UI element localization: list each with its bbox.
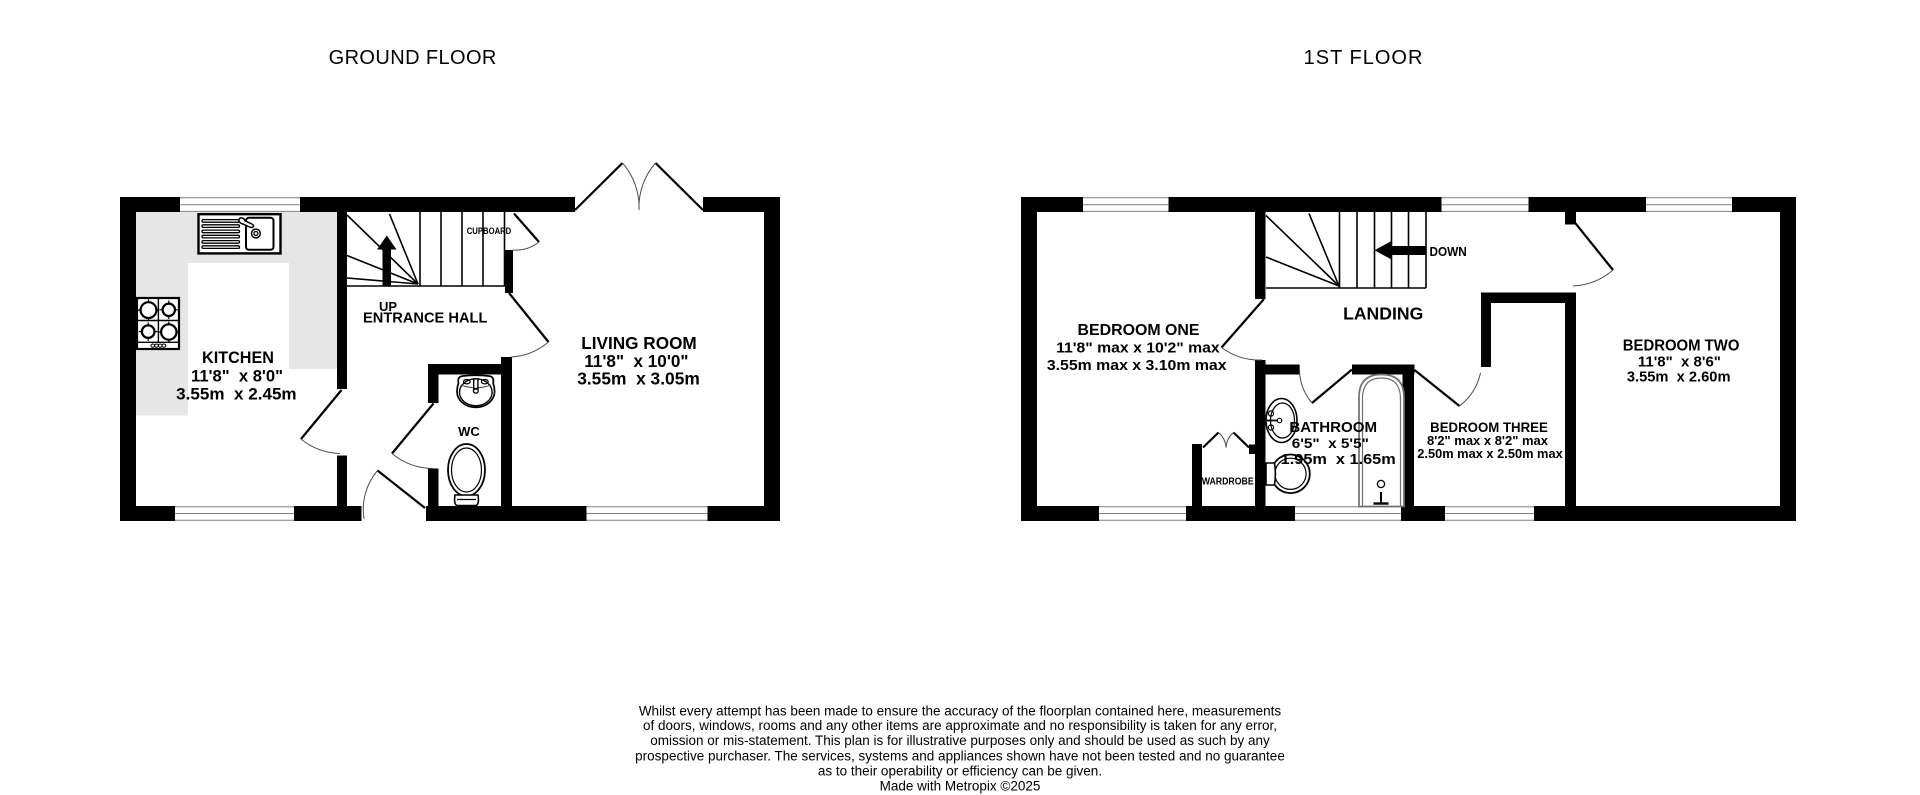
svg-text:11'8" max x 10'2" max: 11'8" max x 10'2" max [1056,339,1220,356]
svg-text:KITCHEN: KITCHEN [202,348,274,367]
svg-text:CUPBOARD: CUPBOARD [467,226,512,237]
svg-text:6'5" x 5'5": 6'5" x 5'5" [1292,435,1369,451]
svg-text:Whilst every attempt has been: Whilst every attempt has been made to en… [639,704,1282,719]
svg-text:WARDROBE: WARDROBE [1202,477,1254,488]
svg-text:3.55m x 2.60m: 3.55m x 2.60m [1627,369,1731,386]
svg-text:BEDROOM THREE: BEDROOM THREE [1430,420,1548,435]
svg-text:11'8" x 8'0": 11'8" x 8'0" [191,366,283,385]
svg-text:GROUND FLOOR: GROUND FLOOR [329,47,497,69]
svg-text:1.95m x 1.65m: 1.95m x 1.65m [1281,451,1396,468]
svg-text:3.55m x 2.45m: 3.55m x 2.45m [176,384,296,403]
svg-text:3.55m max x 3.10m max: 3.55m max x 3.10m max [1047,357,1227,374]
svg-text:prospective purchaser. The ser: prospective purchaser. The services, sys… [635,748,1285,763]
svg-text:8'2" max x 8'2" max: 8'2" max x 8'2" max [1427,434,1548,448]
svg-text:BEDROOM ONE: BEDROOM ONE [1078,322,1200,339]
svg-text:DOWN: DOWN [1430,244,1467,259]
svg-text:WC: WC [458,424,480,439]
svg-text:BATHROOM: BATHROOM [1289,420,1377,436]
svg-text:2.50m max x 2.50m max: 2.50m max x 2.50m max [1417,447,1563,461]
svg-text:as to their operability or eff: as to their operability or efficiency ca… [818,763,1102,778]
svg-text:1ST FLOOR: 1ST FLOOR [1304,47,1424,69]
svg-text:BEDROOM TWO: BEDROOM TWO [1623,338,1740,355]
svg-text:LANDING: LANDING [1343,304,1423,324]
svg-text:ENTRANCE HALL: ENTRANCE HALL [363,309,487,326]
svg-text:omission or mis-statement. Thi: omission or mis-statement. This plan is … [650,733,1270,748]
svg-text:of doors, windows, rooms and a: of doors, windows, rooms and any other i… [643,718,1277,733]
svg-text:3.55m x 3.05m: 3.55m x 3.05m [577,369,700,389]
svg-text:Made with Metropix ©2025: Made with Metropix ©2025 [880,779,1041,794]
